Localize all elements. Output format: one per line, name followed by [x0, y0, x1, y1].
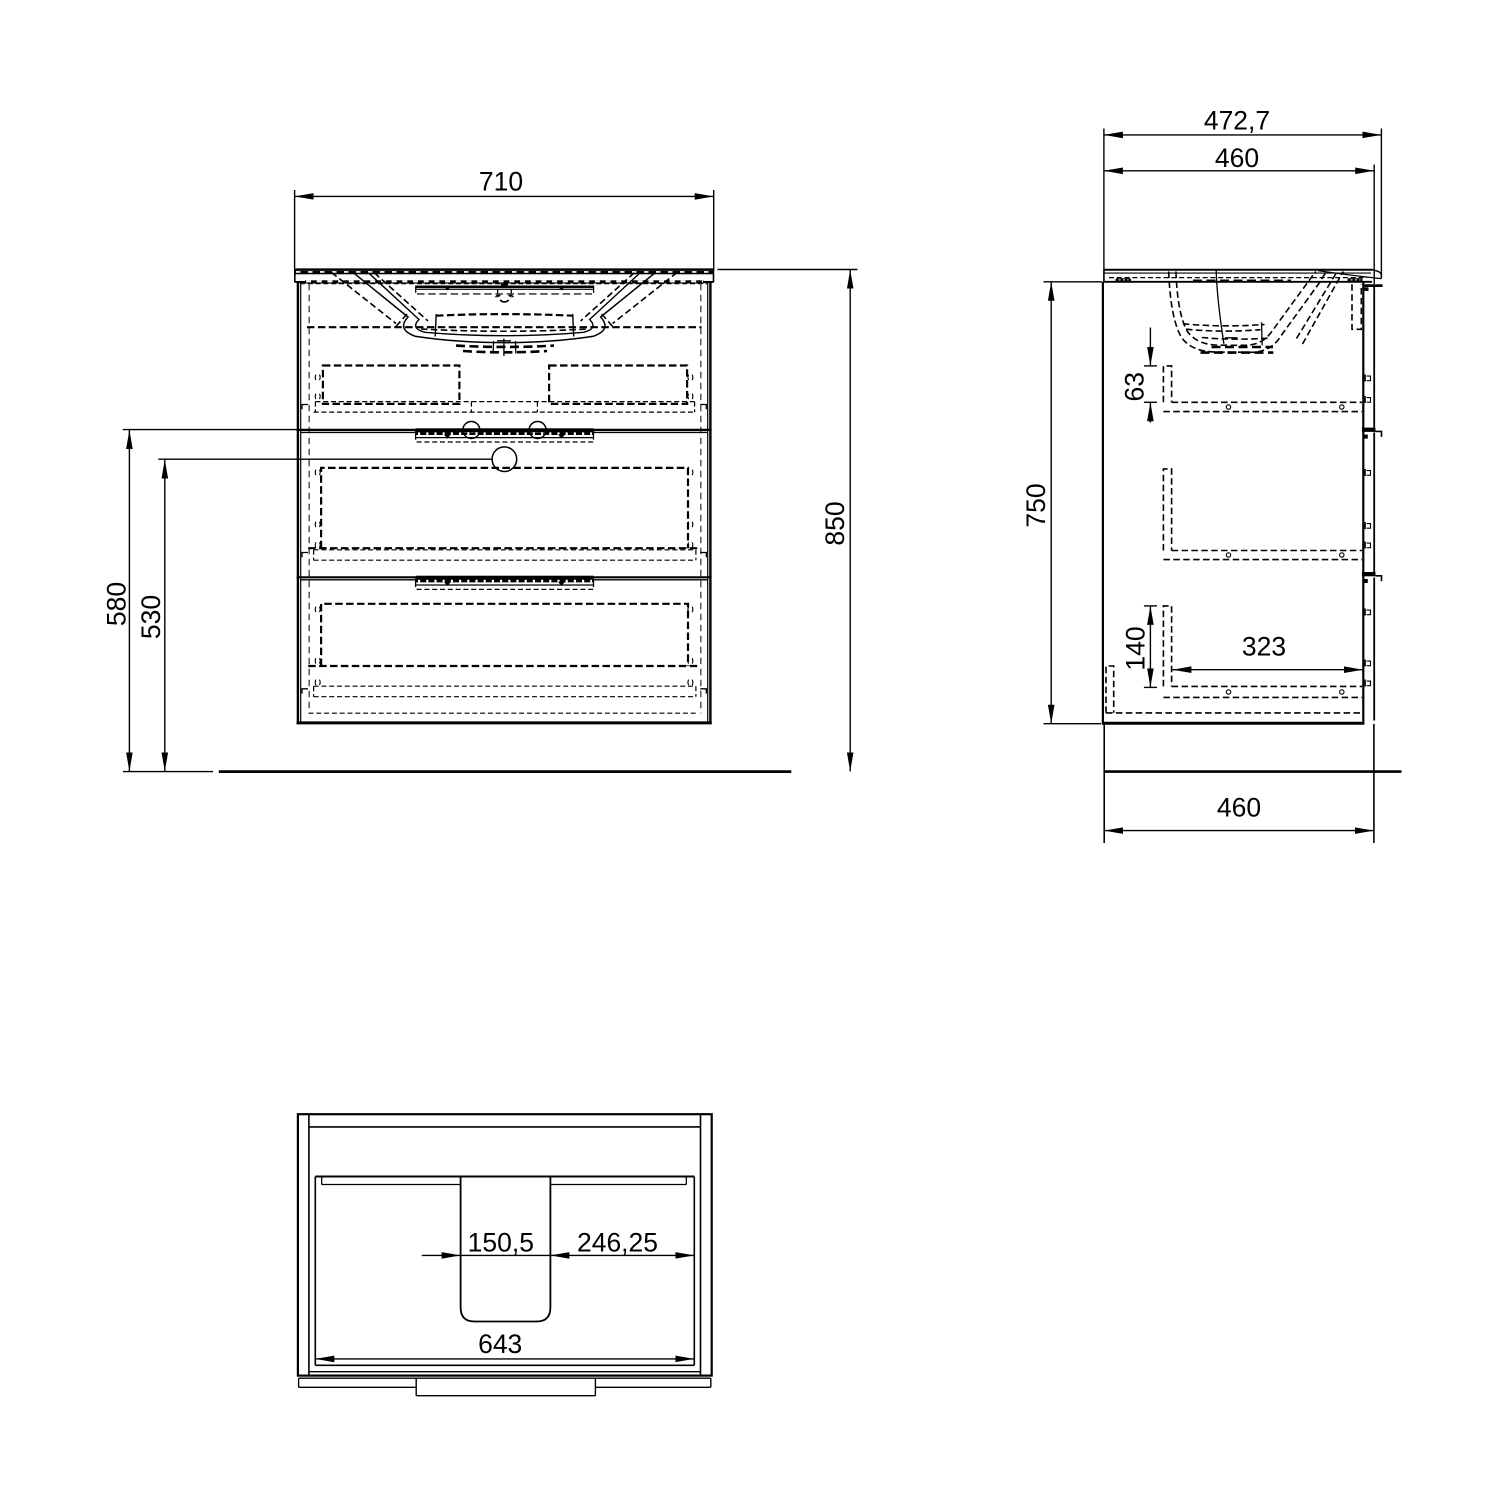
svg-text:246,25: 246,25	[577, 1227, 658, 1257]
svg-text:140: 140	[1121, 626, 1151, 670]
svg-text:323: 323	[1242, 632, 1286, 662]
svg-text:710: 710	[479, 166, 523, 196]
svg-text:460: 460	[1217, 793, 1261, 823]
svg-text:460: 460	[1215, 143, 1259, 173]
svg-text:750: 750	[1021, 483, 1051, 527]
svg-text:850: 850	[820, 501, 850, 545]
svg-text:643: 643	[478, 1329, 522, 1359]
svg-text:150,5: 150,5	[468, 1227, 534, 1257]
svg-text:472,7: 472,7	[1204, 106, 1270, 136]
svg-text:530: 530	[136, 595, 166, 639]
svg-text:580: 580	[102, 582, 132, 626]
svg-text:63: 63	[1119, 372, 1149, 401]
